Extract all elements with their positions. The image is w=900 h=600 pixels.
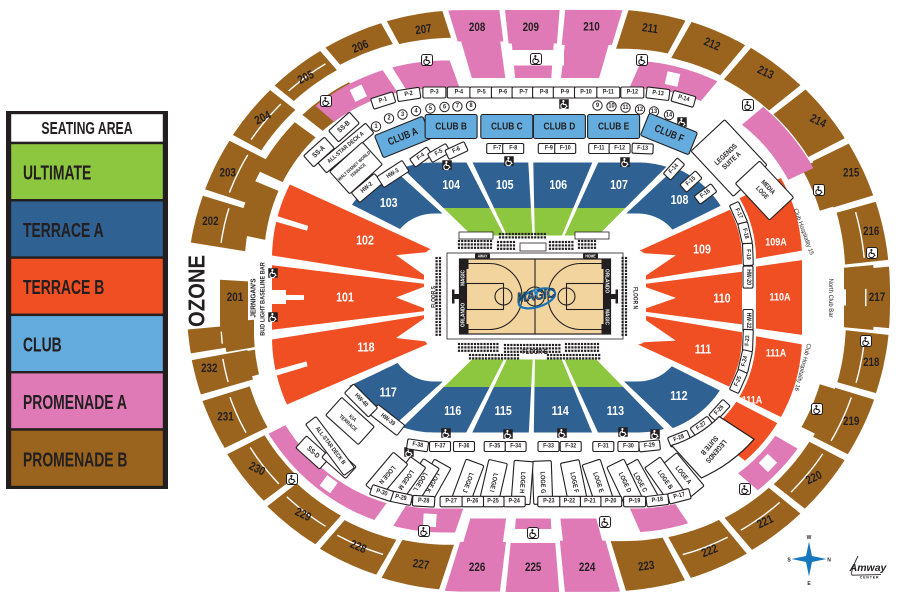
svg-text:P-22: P-22 <box>564 498 576 504</box>
svg-text:116: 116 <box>444 403 462 418</box>
svg-text:102: 102 <box>356 232 374 247</box>
svg-text:216: 216 <box>863 225 879 238</box>
svg-text:P-28: P-28 <box>418 498 430 505</box>
svg-text:JERNIGAN'S: JERNIGAN'S <box>250 278 257 318</box>
svg-text:CLUB: CLUB <box>23 333 62 356</box>
svg-text:F-31: F-31 <box>598 443 610 449</box>
svg-text:111A: 111A <box>742 395 763 407</box>
svg-text:F-9: F-9 <box>545 145 553 151</box>
svg-text:P-9: P-9 <box>561 89 570 95</box>
svg-text:111A: 111A <box>766 348 787 360</box>
svg-text:F-11: F-11 <box>594 145 605 151</box>
svg-text:F-34: F-34 <box>510 443 522 449</box>
svg-text:211: 211 <box>641 21 659 36</box>
svg-text:F-35: F-35 <box>489 443 501 449</box>
svg-text:P-21: P-21 <box>584 498 596 504</box>
svg-text:111: 111 <box>695 341 712 356</box>
svg-text:112: 112 <box>670 388 688 403</box>
svg-text:F-33: F-33 <box>543 443 554 449</box>
svg-text:110: 110 <box>713 290 731 305</box>
svg-text:F-36: F-36 <box>459 443 470 449</box>
svg-text:ORLANDO: ORLANDO <box>460 303 466 327</box>
svg-text:F-19: F-19 <box>744 249 751 260</box>
svg-text:F-7: F-7 <box>493 145 501 151</box>
svg-text:P-24: P-24 <box>508 498 520 504</box>
svg-text:114: 114 <box>552 403 570 418</box>
svg-text:P-5: P-5 <box>477 89 486 95</box>
svg-text:208: 208 <box>469 21 485 34</box>
svg-text:AWAY: AWAY <box>478 254 488 258</box>
svg-text:106: 106 <box>549 177 567 192</box>
svg-text:215: 215 <box>843 167 859 180</box>
svg-text:104: 104 <box>442 177 460 192</box>
svg-text:207: 207 <box>414 22 432 37</box>
svg-text:117: 117 <box>380 384 398 399</box>
svg-text:118: 118 <box>357 339 375 354</box>
svg-text:217: 217 <box>869 291 885 304</box>
svg-text:101: 101 <box>336 289 354 304</box>
svg-text:P-26: P-26 <box>467 498 479 504</box>
svg-text:P-3: P-3 <box>430 89 439 95</box>
svg-text:HW-22: HW-22 <box>745 313 751 329</box>
svg-text:W: W <box>807 535 812 541</box>
svg-text:201: 201 <box>227 291 243 304</box>
svg-text:F-29: F-29 <box>644 442 655 450</box>
svg-text:F-10: F-10 <box>560 145 571 151</box>
svg-text:P-12: P-12 <box>627 89 639 95</box>
svg-text:10: 10 <box>608 103 615 109</box>
svg-text:224: 224 <box>579 561 596 574</box>
svg-text:P-25: P-25 <box>487 498 499 504</box>
svg-text:P-20: P-20 <box>605 498 617 504</box>
svg-text:N: N <box>827 557 831 563</box>
svg-text:TERRACE A: TERRACE A <box>23 218 104 241</box>
svg-text:CLUB B: CLUB B <box>435 120 467 132</box>
svg-text:PROMENADE A: PROMENADE A <box>23 390 127 413</box>
svg-text:232: 232 <box>201 362 217 375</box>
svg-text:TERRACE B: TERRACE B <box>23 276 104 299</box>
svg-text:108: 108 <box>671 192 689 207</box>
svg-text:14: 14 <box>666 112 673 118</box>
svg-text:CLUB E: CLUB E <box>598 120 629 132</box>
svg-text:226: 226 <box>469 561 485 574</box>
svg-text:LOGE H: LOGE H <box>518 472 527 494</box>
svg-text:P-27: P-27 <box>445 498 457 504</box>
svg-text:P-2: P-2 <box>404 90 414 98</box>
svg-text:SEATING AREA: SEATING AREA <box>41 119 132 139</box>
svg-text:209: 209 <box>523 21 539 34</box>
svg-text:BUD LIGHT BASELINE BAR: BUD LIGHT BASELINE BAR <box>260 262 266 336</box>
svg-text:231: 231 <box>217 411 233 424</box>
svg-text:P-19: P-19 <box>629 498 641 504</box>
svg-text:F-37: F-37 <box>435 443 446 449</box>
svg-text:F-13: F-13 <box>637 145 648 152</box>
svg-text:P-7: P-7 <box>519 89 528 95</box>
svg-text:CLUB C: CLUB C <box>491 120 523 132</box>
svg-text:F-23: F-23 <box>744 335 751 346</box>
svg-text:P-23: P-23 <box>543 498 555 504</box>
svg-text:F-32: F-32 <box>565 443 576 449</box>
svg-text:P-10: P-10 <box>580 89 592 95</box>
svg-text:113: 113 <box>607 403 625 418</box>
svg-text:219: 219 <box>843 415 859 428</box>
svg-text:F-12: F-12 <box>614 145 625 151</box>
svg-text:LOGE G: LOGE G <box>538 471 546 493</box>
svg-text:P-11: P-11 <box>603 89 615 95</box>
svg-text:North Club Bar: North Club Bar <box>827 279 833 318</box>
svg-text:202: 202 <box>202 215 218 228</box>
svg-text:218: 218 <box>863 356 879 369</box>
svg-text:HOME: HOME <box>585 254 596 258</box>
svg-text:12: 12 <box>637 107 644 113</box>
svg-text:FLOOR N: FLOOR N <box>631 287 638 309</box>
svg-text:203: 203 <box>219 166 235 179</box>
svg-text:107: 107 <box>610 177 628 192</box>
svg-text:ULTIMATE: ULTIMATE <box>23 161 91 184</box>
svg-text:F-30: F-30 <box>623 443 634 449</box>
svg-text:ORLANDO: ORLANDO <box>604 269 610 293</box>
svg-text:CENTER: CENTER <box>860 575 880 579</box>
svg-text:MAGIC: MAGIC <box>460 270 466 286</box>
svg-text:HW-20: HW-20 <box>745 269 751 285</box>
svg-text:115: 115 <box>495 403 513 418</box>
svg-text:223: 223 <box>637 559 655 574</box>
svg-text:227: 227 <box>412 557 430 572</box>
svg-text:E: E <box>807 581 811 587</box>
svg-text:OZONE: OZONE <box>183 255 210 327</box>
svg-text:S: S <box>787 557 791 563</box>
svg-text:F-8: F-8 <box>509 145 518 151</box>
svg-text:MAGIC: MAGIC <box>604 309 610 325</box>
svg-text:210: 210 <box>583 21 599 34</box>
svg-text:P-4: P-4 <box>455 89 464 95</box>
svg-text:225: 225 <box>525 561 541 574</box>
svg-text:109: 109 <box>693 241 711 256</box>
svg-text:PROMENADE B: PROMENADE B <box>23 448 127 471</box>
svg-text:P-8: P-8 <box>540 89 549 95</box>
svg-text:110A: 110A <box>769 292 790 304</box>
svg-text:P-6: P-6 <box>499 89 508 95</box>
svg-text:11: 11 <box>623 105 630 111</box>
svg-text:105: 105 <box>496 177 514 192</box>
svg-text:109A: 109A <box>765 237 787 249</box>
svg-text:103: 103 <box>380 195 398 210</box>
svg-text:CLUB D: CLUB D <box>544 120 576 132</box>
